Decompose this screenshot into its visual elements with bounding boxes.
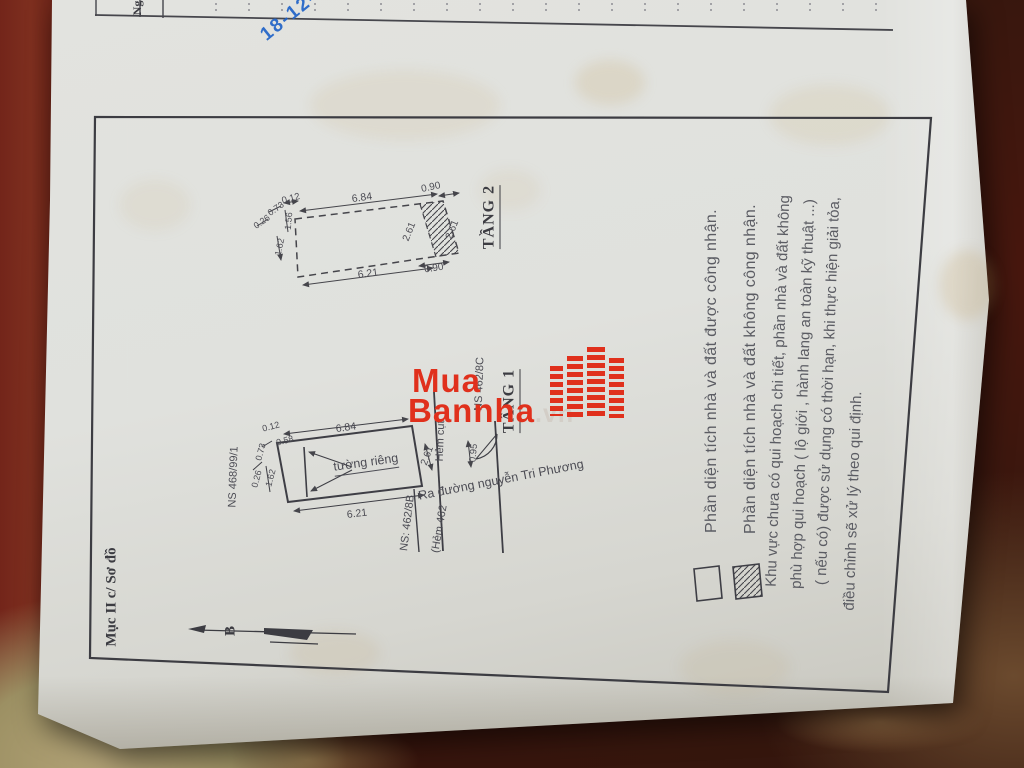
top-table-lines [95, 0, 893, 30]
section-label: Mục II c/ Sơ đồ [105, 547, 120, 646]
watermark-logo-icon [567, 356, 583, 418]
watermark-brand: Bannha [408, 392, 535, 429]
dim-label: 6.84 [335, 421, 357, 434]
legend-text-not-recognized: Phần diện tích nhà và đất không công nhậ… [743, 204, 759, 534]
dim-label: 6.84 [351, 191, 373, 204]
dim-label: 0.95 [468, 443, 479, 462]
photo-of-document: Ng 18-12- TẦNG 2 0.12 6.84 0.90 2.61 2.6… [0, 0, 1024, 768]
north-label: B [224, 626, 239, 636]
north-arrow [188, 625, 356, 644]
dim-label: 1.56 [284, 212, 294, 230]
watermark-logo-icon [550, 366, 563, 416]
watermark-logo-icon [587, 347, 605, 419]
legend-text-recognized: Phần diện tích nhà và đất được công nhận… [704, 209, 720, 533]
watermark-logo-icon [609, 358, 624, 418]
legend-swatch-not-recognized [733, 564, 762, 599]
dim-label: 6.21 [357, 267, 379, 280]
legend-swatches [694, 564, 762, 601]
dim-label: 6.21 [346, 508, 368, 521]
legend-swatch-recognized [694, 566, 722, 601]
house-number-label: NS 468/99/1 [227, 446, 240, 508]
floor2-title: TẦNG 2 [482, 185, 501, 249]
table-column-label: Ng [131, 1, 143, 16]
